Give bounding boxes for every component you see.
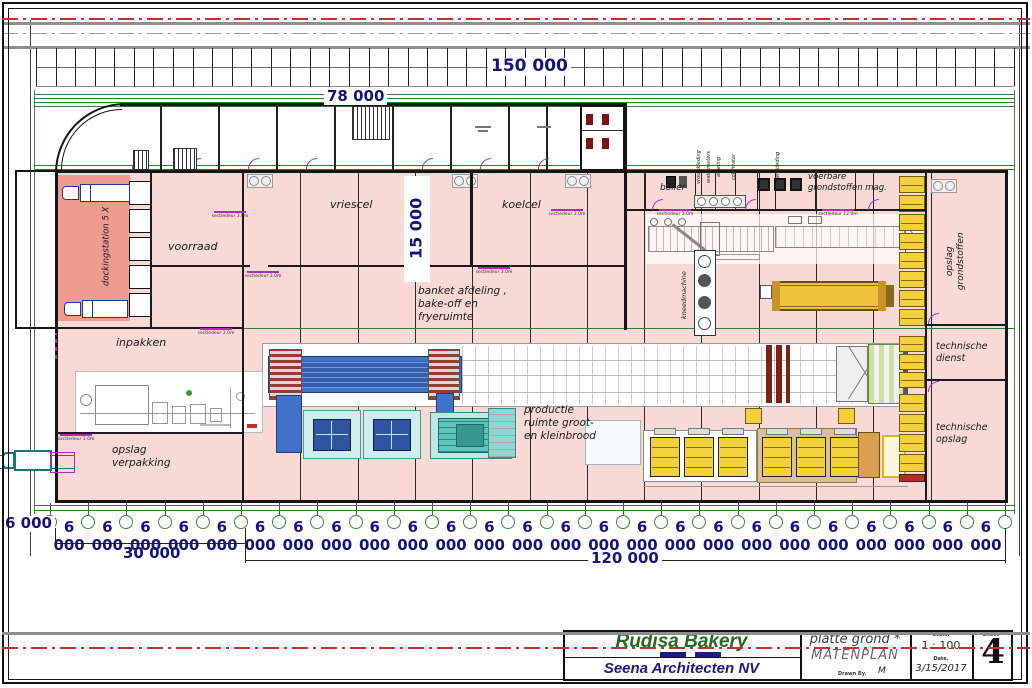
centerline-top <box>2 18 1030 20</box>
centerline-bottom <box>2 647 1030 649</box>
floor-plan-sheet: 150 000 78 000 15 000 30 000 120 000 6 0… <box>0 0 1032 688</box>
page-inner-border <box>8 8 1022 680</box>
border-band <box>2 632 1030 635</box>
